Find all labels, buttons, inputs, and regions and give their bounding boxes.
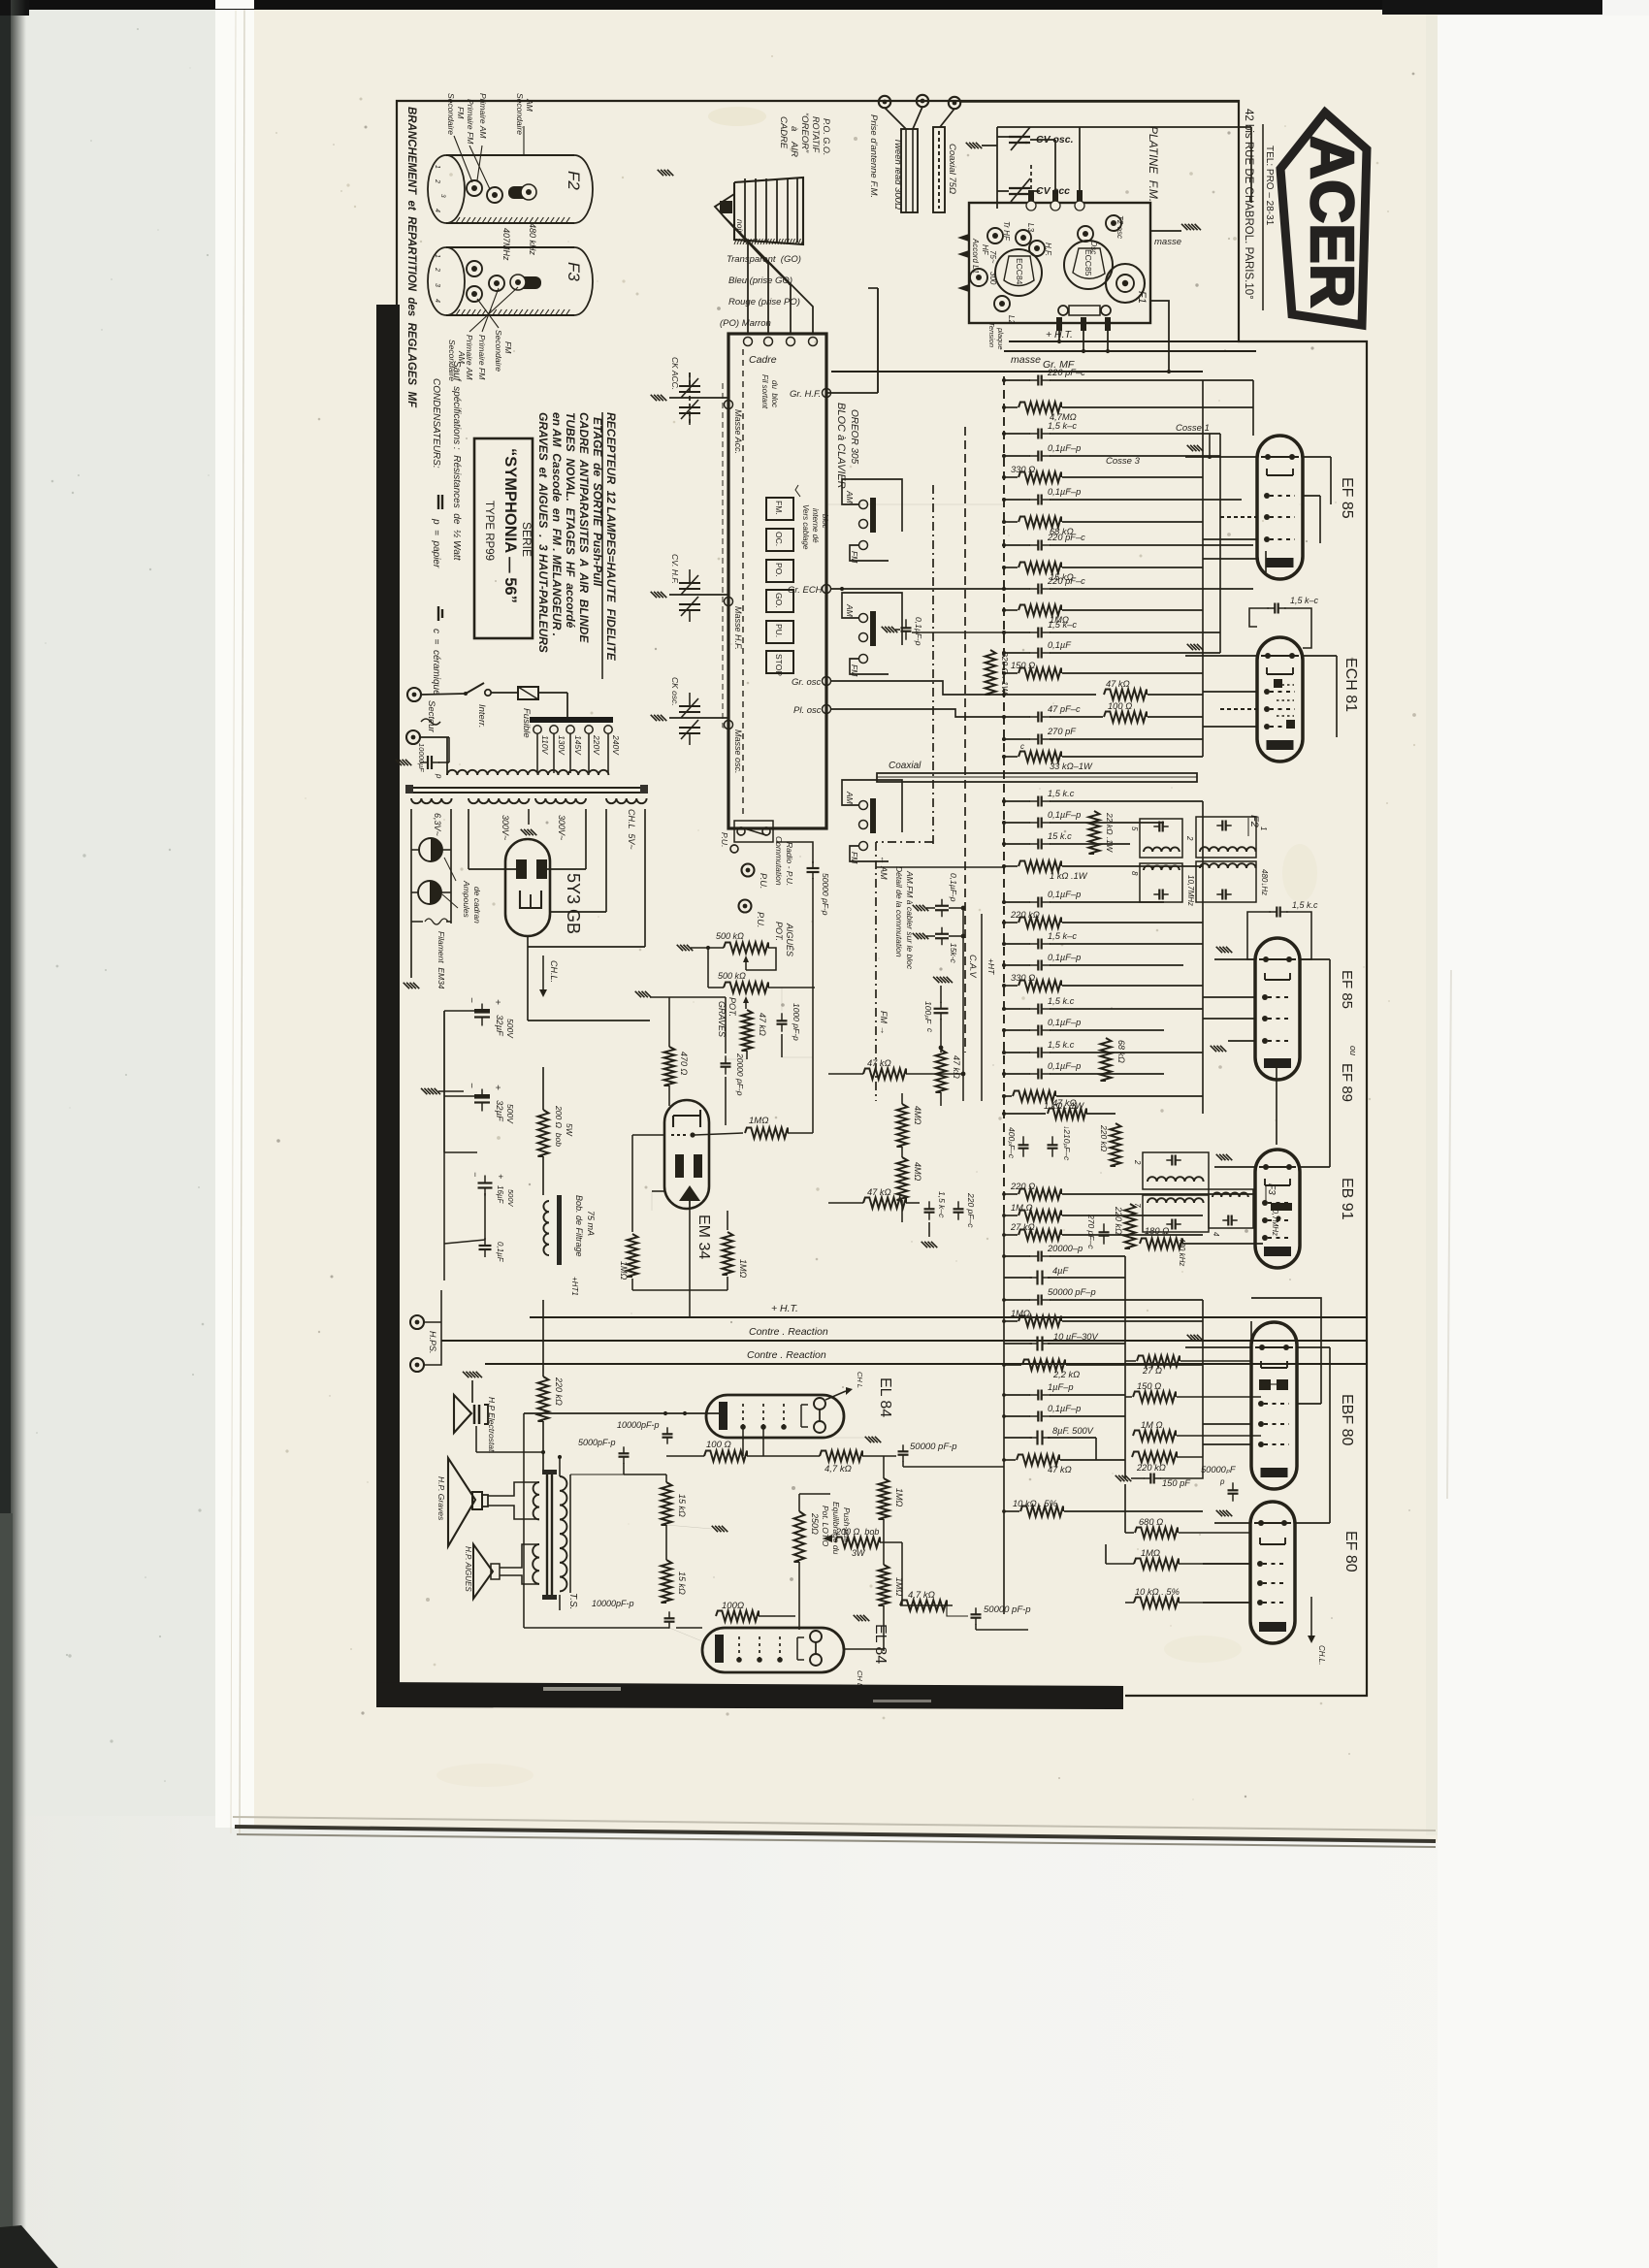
- svg-text:8: 8: [1130, 871, 1139, 876]
- svg-text:c = céramique: c = céramique: [431, 629, 441, 696]
- svg-text:Sauf spécifications : Résist: Sauf spécifications : Résistances de ½ W…: [451, 361, 462, 562]
- svg-text:Tension: Tension: [987, 322, 996, 347]
- svg-text:GO.: GO.: [774, 593, 784, 608]
- svg-text:Ampoules: Ampoules: [462, 880, 471, 919]
- svg-text:AM: AM: [525, 98, 534, 113]
- svg-text:10000pF-p: 10000pF-p: [592, 1599, 634, 1608]
- svg-text:10,7MHz: 10,7MHz: [1186, 875, 1195, 906]
- svg-text:480 kHz: 480 kHz: [528, 223, 537, 256]
- svg-text:10 µF–30V: 10 µF–30V: [1053, 1332, 1098, 1342]
- svg-text:100 Ω: 100 Ω: [1108, 701, 1132, 711]
- svg-text:50000 pF-p: 50000 pF-p: [984, 1604, 1031, 1615]
- svg-text:H.PS.: H.PS.: [428, 1331, 437, 1354]
- svg-text:Coaxial: Coaxial: [889, 761, 921, 771]
- svg-text:OC.: OC.: [774, 532, 784, 546]
- svg-text:4: 4: [434, 209, 440, 212]
- svg-text:EM 34: EM 34: [695, 1215, 712, 1259]
- svg-text:4: 4: [434, 299, 440, 303]
- svg-text:FM: FM: [850, 664, 859, 677]
- svg-text:Masse Acc.: Masse Acc.: [733, 409, 743, 454]
- svg-text:50000 pF-p: 50000 pF-p: [821, 873, 830, 916]
- svg-text:100Ω: 100Ω: [722, 1601, 744, 1611]
- svg-text:P.U.: P.U.: [720, 832, 729, 847]
- svg-text:1,5 k–c: 1,5 k–c: [937, 1191, 947, 1218]
- svg-text:ECH 81: ECH 81: [1342, 658, 1359, 712]
- svg-text:407MHz: 407MHz: [501, 228, 511, 261]
- svg-text:300V~: 300V~: [557, 815, 566, 840]
- svg-text:1MΩ: 1MΩ: [1011, 1309, 1030, 1318]
- svg-text:15k-c: 15k-c: [949, 943, 958, 964]
- svg-text:2: 2: [434, 267, 440, 272]
- svg-text:400ₚF–c: 400ₚF–c: [1007, 1127, 1017, 1159]
- svg-text:Cadre: Cadre: [749, 354, 777, 366]
- svg-text:10 kΩ . 5%: 10 kΩ . 5%: [1013, 1499, 1057, 1508]
- svg-text:300: 300: [988, 272, 997, 285]
- svg-text:+ H.T.: + H.T.: [1046, 329, 1073, 340]
- svg-text:Secondaire: Secondaire: [446, 93, 456, 135]
- svg-text:F2: F2: [1248, 815, 1260, 827]
- svg-text:Cosse 3: Cosse 3: [1106, 456, 1141, 467]
- svg-text:0,1µF–p: 0,1µF–p: [1048, 487, 1081, 497]
- svg-text:220 pF–c: 220 pF–c: [1047, 368, 1085, 377]
- svg-text:150 Ω: 150 Ω: [1011, 661, 1035, 670]
- svg-text:F2: F2: [565, 171, 583, 190]
- svg-text:1 kΩ .1W: 1 kΩ .1W: [1050, 871, 1088, 881]
- svg-text:CH.L 5V~: CH.L 5V~: [627, 809, 636, 850]
- svg-text:en AM Cascode en FM . MELAN: en AM Cascode en FM . MELANGEUR .: [550, 412, 564, 636]
- svg-text:6,3V~: 6,3V~: [433, 813, 442, 836]
- svg-text:680 Ω: 680 Ω: [1139, 1517, 1163, 1527]
- svg-text:220 kΩ: 220 kΩ: [1099, 1124, 1109, 1152]
- svg-text:130V: 130V: [557, 735, 566, 756]
- svg-text:220 pF–c: 220 pF–c: [1047, 533, 1085, 542]
- svg-text:+HT1: +HT1: [570, 1277, 579, 1296]
- svg-text:EF 80: EF 80: [1342, 1531, 1359, 1572]
- svg-text:1,5 k.c: 1,5 k.c: [1048, 789, 1075, 798]
- svg-text:Filament EM34: Filament EM34: [436, 931, 446, 989]
- svg-text:à: à: [789, 126, 799, 131]
- svg-text:270 pF–c: 270 pF–c: [1086, 1214, 1096, 1249]
- svg-text:Masse osc.: Masse osc.: [733, 729, 743, 774]
- svg-text:↓210ₚF–c: ↓210ₚF–c: [1062, 1125, 1072, 1161]
- svg-text:500 kΩ: 500 kΩ: [716, 931, 744, 941]
- svg-text:50000 pF-p: 50000 pF-p: [910, 1442, 957, 1452]
- svg-text:ROTATIF: ROTATIF: [811, 116, 821, 153]
- svg-text:−: −: [466, 1083, 476, 1088]
- svg-text:CK ACC.: CK ACC.: [670, 357, 680, 390]
- svg-text:0,1µF: 0,1µF: [1048, 640, 1072, 650]
- svg-text:“SYMPHONIA — 56”: “SYMPHONIA — 56”: [501, 448, 519, 603]
- svg-text:150 Ω: 150 Ω: [1137, 1381, 1161, 1391]
- svg-text:75 mA: 75 mA: [586, 1211, 596, 1236]
- svg-text:C.A.V: C.A.V: [968, 955, 978, 979]
- svg-text:CONDENSATEURS:: CONDENSATEURS:: [431, 378, 441, 469]
- svg-text:+: +: [492, 999, 502, 1005]
- svg-text:20000 pF-p: 20000 pF-p: [735, 1053, 745, 1096]
- svg-text:AM: AM: [845, 603, 855, 618]
- svg-text:STOP: STOP: [774, 654, 784, 676]
- svg-text:180 Ω: 180 Ω: [1145, 1226, 1169, 1236]
- svg-text:FM: FM: [503, 341, 513, 354]
- svg-text:470 Ω: 470 Ω: [679, 1052, 689, 1076]
- svg-text:BLOC à CLAVIER: BLOC à CLAVIER: [835, 403, 847, 489]
- svg-text:3W: 3W: [852, 1548, 866, 1558]
- svg-text:Transparent (GO): Transparent (GO): [727, 254, 801, 265]
- svg-text:68 kΩ: 68 kΩ: [1116, 1040, 1126, 1063]
- svg-text:300V~: 300V~: [501, 815, 510, 840]
- svg-text:Pl. osc: Pl. osc: [793, 705, 822, 716]
- svg-text:L2: L2: [1007, 315, 1016, 324]
- svg-text:100ₚF: 100ₚF: [923, 1001, 933, 1024]
- svg-text:Secteur: Secteur: [426, 700, 436, 733]
- svg-text:220 kΩ: 220 kΩ: [1114, 1206, 1123, 1235]
- svg-text:4,7 kΩ: 4,7 kΩ: [824, 1464, 852, 1474]
- svg-text:4: 4: [1212, 1232, 1220, 1237]
- svg-text:FM: FM: [850, 852, 859, 864]
- svg-text:2: 2: [434, 178, 440, 183]
- svg-text:1000 pF-p: 1000 pF-p: [792, 1003, 801, 1041]
- svg-text:Primaire AM: Primaire AM: [478, 93, 488, 139]
- svg-text:L3: L3: [1026, 223, 1035, 232]
- svg-text:Prise d'antenne F.M.: Prise d'antenne F.M.: [868, 114, 879, 198]
- svg-text:4MΩ: 4MΩ: [913, 1162, 922, 1182]
- svg-text:Interr.: Interr.: [476, 704, 487, 728]
- svg-text:ou: ou: [1348, 1046, 1358, 1055]
- svg-text:16µF: 16µF: [496, 1185, 504, 1205]
- svg-text:10000pF-p: 10000pF-p: [617, 1420, 660, 1430]
- svg-text:47 kΩ: 47 kΩ: [1106, 679, 1130, 689]
- svg-text:200 Ω bob: 200 Ω bob: [835, 1527, 879, 1537]
- svg-text:POT.: POT.: [727, 997, 737, 1017]
- svg-text:PO.: PO.: [774, 563, 784, 577]
- svg-text:240V: 240V: [611, 734, 621, 756]
- svg-text:0,1µF–p: 0,1µF–p: [1048, 1061, 1081, 1071]
- svg-text:50000 pF–p: 50000 pF–p: [1048, 1287, 1096, 1297]
- svg-text:1MΩ: 1MΩ: [619, 1261, 629, 1280]
- svg-text:FM: FM: [456, 107, 466, 119]
- svg-text:+: +: [492, 1085, 502, 1090]
- svg-text:27 kΩ: 27 kΩ: [1010, 1222, 1035, 1232]
- svg-text:0,1µF-p: 0,1µF-p: [914, 617, 923, 646]
- svg-text:2,2 kΩ: 2,2 kΩ: [1052, 1370, 1080, 1379]
- svg-text:15 kΩ: 15 kΩ: [677, 1571, 687, 1595]
- svg-text:Coaxial 75Ω: Coaxial 75Ω: [947, 144, 957, 194]
- svg-text:1µF–p: 1µF–p: [1048, 1382, 1074, 1392]
- svg-text:33 kΩ–1W: 33 kΩ–1W: [1050, 761, 1093, 771]
- svg-text:10 kΩ . 5%: 10 kΩ . 5%: [1135, 1587, 1180, 1597]
- svg-text:Radio - P.U.: Radio - P.U.: [785, 842, 794, 886]
- svg-text:47 kΩ: 47 kΩ: [867, 1187, 891, 1197]
- svg-text:2: 2: [1185, 835, 1194, 841]
- svg-text:masse: masse: [1011, 354, 1041, 366]
- svg-text:T.S.: T.S.: [567, 1593, 578, 1609]
- svg-text:42 bis RUE DE CHABROL. PARIS.1: 42 bis RUE DE CHABROL. PARIS.10°: [1243, 109, 1254, 300]
- svg-text:EF 85: EF 85: [1339, 970, 1355, 1009]
- svg-text:−: −: [466, 997, 476, 1003]
- svg-text:3: 3: [434, 283, 440, 287]
- svg-text:3: 3: [439, 194, 446, 198]
- svg-text:1MΩ: 1MΩ: [1141, 1548, 1160, 1558]
- svg-text:1,5 k–c: 1,5 k–c: [1290, 596, 1319, 605]
- svg-text:0,1µF-p: 0,1µF-p: [949, 873, 958, 902]
- svg-text:75~: 75~: [988, 250, 997, 264]
- svg-text:FM: FM: [850, 551, 859, 564]
- svg-text:AIR: AIR: [789, 141, 799, 157]
- svg-text:POT.: POT.: [774, 922, 784, 941]
- svg-text:220 kΩ: 220 kΩ: [1010, 910, 1040, 920]
- svg-text:1,5 k–c: 1,5 k–c: [1048, 931, 1077, 941]
- svg-text:22 kΩ .1W: 22 kΩ .1W: [1105, 812, 1115, 853]
- svg-text:F3: F3: [565, 262, 583, 281]
- svg-text:CH L: CH L: [856, 1670, 864, 1687]
- svg-text:−: −: [470, 1172, 480, 1177]
- svg-text:SERIE: SERIE: [520, 522, 533, 557]
- svg-text:Commutation: Commutation: [774, 836, 784, 886]
- svg-text:Tr HF: Tr HF: [1002, 221, 1011, 242]
- svg-text:0,1µF: 0,1µF: [496, 1242, 504, 1263]
- svg-text:0,1µF–p: 0,1µF–p: [1048, 1018, 1081, 1027]
- svg-text:F1: F1: [1136, 291, 1148, 304]
- svg-text:P.U.: P.U.: [759, 873, 768, 889]
- svg-text:Tween lead 300Ω: Tween lead 300Ω: [892, 138, 903, 210]
- svg-text:15 k.c: 15 k.c: [1048, 831, 1072, 841]
- svg-text:5Y3 GB: 5Y3 GB: [564, 873, 583, 934]
- svg-text:1,5 k.c: 1,5 k.c: [1292, 900, 1318, 910]
- svg-text:4µF: 4µF: [1052, 1266, 1070, 1276]
- svg-text:CH.L.: CH.L.: [1317, 1645, 1326, 1665]
- svg-text:1: 1: [434, 165, 440, 169]
- svg-text:c: c: [925, 1028, 934, 1032]
- svg-text:Contre . Reaction: Contre . Reaction: [747, 1349, 826, 1361]
- svg-text:EBF 80: EBF 80: [1339, 1394, 1355, 1445]
- svg-text:plaque: plaque: [996, 327, 1005, 350]
- svg-text:Détail de la commutation: Détail de la commutation: [894, 866, 904, 957]
- svg-text:0,1µF–p: 0,1µF–p: [1048, 810, 1081, 820]
- svg-text:Gr. osc: Gr. osc: [792, 677, 822, 688]
- svg-text:Bob. de Filtrage: Bob. de Filtrage: [574, 1195, 584, 1257]
- svg-text:330 Ω: 330 Ω: [1011, 465, 1035, 474]
- svg-text:47 kΩ: 47 kΩ: [1052, 1098, 1077, 1108]
- svg-text:EL 84: EL 84: [877, 1377, 893, 1417]
- svg-text:ACER: ACER: [1298, 136, 1365, 308]
- svg-text:1MΩ: 1MΩ: [894, 1488, 904, 1507]
- svg-text:Rouge (prise PO): Rouge (prise PO): [728, 297, 800, 308]
- svg-text:220 Ω: 220 Ω: [1010, 1182, 1035, 1191]
- svg-text:+: +: [496, 1174, 505, 1179]
- svg-text:1,5 k–c: 1,5 k–c: [1048, 421, 1077, 431]
- svg-text:150 pF: 150 pF: [1162, 1478, 1191, 1488]
- svg-text:T2 osc: T2 osc: [1115, 215, 1124, 239]
- svg-text:P.U.: P.U.: [756, 912, 765, 927]
- svg-text:PU.: PU.: [774, 624, 784, 637]
- svg-text:330 Ω: 330 Ω: [1011, 973, 1035, 983]
- svg-text:Primaire FM: Primaire FM: [466, 99, 475, 145]
- svg-text:200 Ω bob: 200 Ω bob: [554, 1105, 564, 1147]
- svg-text:47 pF–c: 47 pF–c: [1048, 704, 1081, 714]
- svg-text:27 Ω: 27 Ω: [1142, 1366, 1162, 1376]
- svg-text:de cadran: de cadran: [472, 887, 482, 923]
- svg-text:5: 5: [1130, 826, 1139, 831]
- svg-text:20000–p: 20000–p: [1047, 1244, 1083, 1253]
- svg-text:145V: 145V: [573, 735, 583, 756]
- svg-text:220 kΩ: 220 kΩ: [554, 1377, 564, 1406]
- svg-text:p: p: [1219, 1477, 1225, 1486]
- svg-text:EF 89: EF 89: [1339, 1063, 1355, 1102]
- svg-text:Fusible: Fusible: [521, 708, 532, 738]
- svg-text:EF 85: EF 85: [1339, 477, 1355, 519]
- svg-text:1MΩ: 1MΩ: [749, 1116, 768, 1126]
- svg-text:Fil sortant: Fil sortant: [760, 374, 769, 409]
- svg-text:Accord L1: Accord L1: [971, 238, 980, 274]
- svg-text:P.O. G.O.: P.O. G.O.: [822, 118, 831, 155]
- svg-text:8µF. 500V: 8µF. 500V: [1052, 1426, 1094, 1436]
- svg-text:(PO) Marron: (PO) Marron: [720, 318, 771, 329]
- svg-text:Primaire FM: Primaire FM: [477, 335, 487, 380]
- svg-text:5W: 5W: [565, 1123, 574, 1137]
- svg-text:EL 84: EL 84: [872, 1624, 889, 1664]
- svg-text:p: p: [435, 773, 443, 779]
- svg-text:220V: 220V: [592, 734, 601, 756]
- svg-text:220 pF–c: 220 pF–c: [1047, 576, 1085, 586]
- svg-text:47 kΩ: 47 kΩ: [1048, 1465, 1072, 1474]
- svg-text:AM.FM à cabler sur le bloc: AM.FM à cabler sur le bloc: [905, 870, 915, 970]
- svg-text:TUBES NOVAL. ETAGES HF acc: TUBES NOVAL. ETAGES HF accordé: [564, 412, 577, 629]
- svg-text:15 kΩ: 15 kΩ: [677, 1494, 687, 1517]
- svg-text:32µF: 32µF: [494, 1100, 504, 1122]
- svg-text:Cosse 1: Cosse 1: [1176, 423, 1210, 434]
- svg-text:TEL: PRO – 28-31: TEL: PRO – 28-31: [1264, 146, 1275, 226]
- svg-text:47 kΩ: 47 kΩ: [758, 1013, 767, 1036]
- svg-text:GRAVES et AIGUES . 3 HAUT-: GRAVES et AIGUES . 3 HAUT-PARLEURS: [536, 412, 550, 653]
- svg-text:TYPE RP99: TYPE RP99: [483, 501, 495, 561]
- svg-text:masse: masse: [1154, 237, 1181, 247]
- svg-text:CV acc: CV acc: [1036, 185, 1070, 197]
- svg-text:0,1µF–p: 0,1µF–p: [1048, 443, 1081, 453]
- svg-text:AM: AM: [845, 791, 855, 805]
- svg-text:0,1µF–p: 0,1µF–p: [1048, 1404, 1081, 1413]
- svg-text:BRANCHEMENT et REPARTITION: BRANCHEMENT et REPARTITION des REGLAGES …: [405, 107, 417, 408]
- svg-text:47 kΩ: 47 kΩ: [867, 1058, 891, 1068]
- svg-text:H.P. Graves: H.P. Graves: [436, 1476, 446, 1521]
- svg-text:Vers cablage: Vers cablage: [801, 504, 810, 550]
- svg-text:2: 2: [1133, 1159, 1142, 1165]
- svg-text:1,5 k.c: 1,5 k.c: [1048, 996, 1075, 1006]
- svg-text:ETAGE de SORTIE Push-Pull: ETAGE de SORTIE Push-Pull: [591, 417, 604, 587]
- svg-text:480↓Hz: 480↓Hz: [1260, 869, 1269, 895]
- svg-text:1: 1: [434, 254, 440, 258]
- svg-text:CH.L.: CH.L.: [549, 960, 559, 983]
- svg-text:47 kΩ: 47 kΩ: [952, 1055, 961, 1079]
- svg-text:FM →: FM →: [879, 1011, 889, 1035]
- svg-text:EB 91: EB 91: [1339, 1178, 1355, 1220]
- svg-text:500V: 500V: [505, 1104, 515, 1124]
- svg-text:32µF: 32µF: [494, 1015, 504, 1037]
- svg-text:270 pF: 270 pF: [1047, 727, 1077, 736]
- svg-text:500 kΩ: 500 kΩ: [718, 971, 746, 981]
- svg-text:c: c: [1020, 742, 1024, 751]
- svg-text:Contre . Reaction: Contre . Reaction: [749, 1326, 828, 1338]
- svg-text:1M Ω: 1M Ω: [1141, 1420, 1163, 1430]
- svg-text:OREOR 305: OREOR 305: [849, 409, 859, 465]
- svg-text:AM: AM: [845, 490, 855, 504]
- svg-text:100 Ω: 100 Ω: [706, 1440, 731, 1450]
- svg-text:RECEPTEUR 12 LAMPES=HAUTE FI: RECEPTEUR 12 LAMPES=HAUTE FIDELITE: [604, 412, 618, 662]
- svg-text:H.P. AIGUES: H.P. AIGUES: [464, 1546, 472, 1592]
- svg-text:250Ω: 250Ω: [810, 1512, 820, 1535]
- svg-text:+HT: +HT: [986, 958, 996, 975]
- svg-text:“OREOR”: “OREOR”: [799, 113, 810, 153]
- svg-text:HF: HF: [981, 244, 989, 256]
- svg-text:500V: 500V: [505, 1019, 515, 1039]
- svg-text:ECC84: ECC84: [1015, 258, 1024, 285]
- svg-text:Bleu (prise GO): Bleu (prise GO): [728, 275, 792, 286]
- svg-text:Secondaire: Secondaire: [494, 330, 503, 372]
- svg-text:du bloc: du bloc: [770, 380, 779, 407]
- svg-text:1MΩ: 1MΩ: [738, 1259, 748, 1279]
- svg-text:220 pF–c: 220 pF–c: [966, 1192, 976, 1228]
- svg-text:4MΩ: 4MΩ: [913, 1106, 922, 1125]
- svg-text:5000pF-p: 5000pF-p: [578, 1438, 616, 1447]
- svg-text:CADRE ANTIPARASITES A AIR: CADRE ANTIPARASITES A AIR BLINDE: [577, 412, 591, 643]
- svg-text:CH L: CH L: [856, 1372, 864, 1388]
- svg-text:+ H.T.: + H.T.: [771, 1303, 798, 1314]
- svg-text:4,7 kΩ: 4,7 kΩ: [908, 1590, 935, 1601]
- svg-text:p = papier: p = papier: [431, 518, 441, 568]
- svg-text:220 kΩ: 220 kΩ: [1136, 1463, 1166, 1473]
- svg-text:50000ₚF: 50000ₚF: [1201, 1465, 1237, 1474]
- svg-text:110V: 110V: [540, 735, 550, 756]
- svg-text:bloc: bloc: [821, 514, 829, 529]
- svg-text:1M Ω: 1M Ω: [1011, 1203, 1033, 1213]
- svg-text:1,5 k–c: 1,5 k–c: [1048, 620, 1077, 630]
- svg-text:CK osc.: CK osc.: [670, 677, 680, 706]
- svg-text:CADRE: CADRE: [778, 116, 789, 149]
- svg-text:AIGUÉS: AIGUÉS: [785, 923, 794, 956]
- svg-text:PLATINE F.M.: PLATINE F.M.: [1147, 126, 1160, 202]
- svg-text:interne dé: interne dé: [811, 508, 820, 543]
- svg-text:H.F.: H.F.: [1044, 243, 1052, 256]
- svg-text:0,1µF–p: 0,1µF–p: [1048, 953, 1081, 962]
- svg-text:Masse H.F.: Masse H.F.: [733, 606, 743, 650]
- svg-text:H.P Electrostat.: H.P Electrostat.: [487, 1397, 497, 1454]
- svg-text:FM.: FM.: [774, 501, 784, 515]
- svg-text:CV. H.F.: CV. H.F.: [670, 554, 680, 584]
- svg-text:Gr. H.F.: Gr. H.F.: [790, 389, 821, 400]
- svg-text:10000µF: 10000µF: [417, 743, 426, 772]
- svg-text:Osc: Osc: [1089, 241, 1098, 254]
- svg-text:1,5 k.c: 1,5 k.c: [1048, 1040, 1075, 1050]
- svg-text:0,1µF–p: 0,1µF–p: [1048, 890, 1081, 899]
- svg-text:500V: 500V: [506, 1189, 515, 1208]
